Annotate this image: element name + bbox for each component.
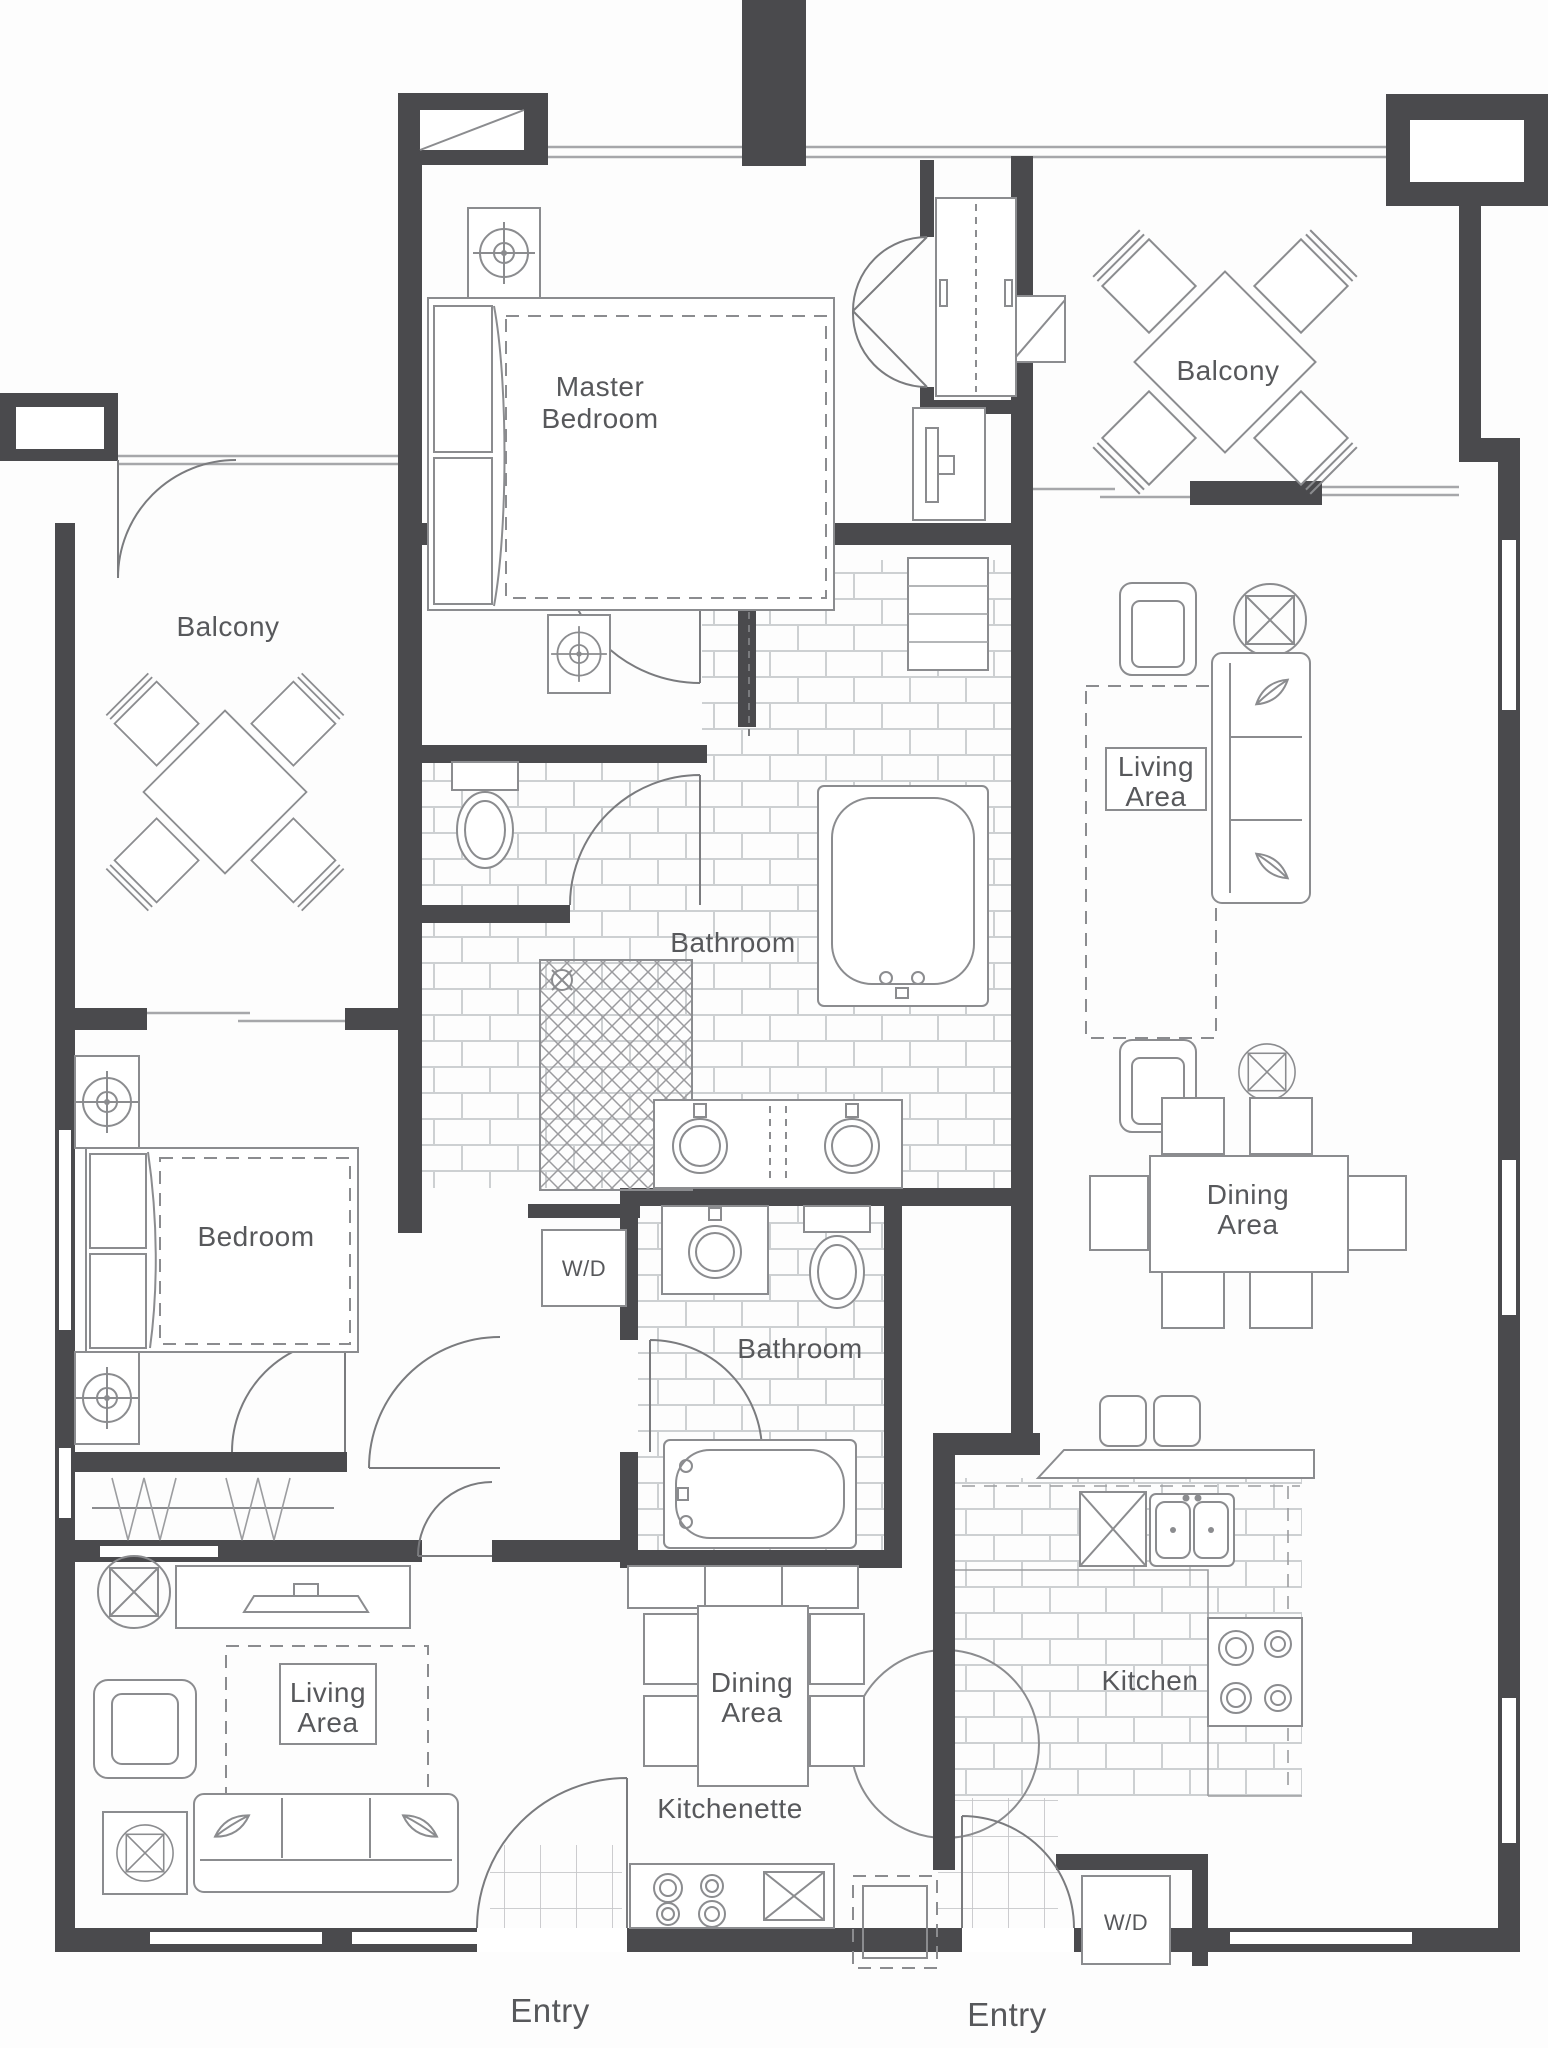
dining-area-center-label: Area bbox=[721, 1697, 782, 1728]
living-area-left-label: Living bbox=[290, 1677, 366, 1708]
dining-chair bbox=[1090, 1176, 1148, 1250]
dining-chair bbox=[644, 1696, 698, 1766]
sink bbox=[764, 1872, 824, 1920]
living-area-right-label: Living bbox=[1118, 751, 1194, 782]
dining-chair bbox=[810, 1614, 864, 1684]
bathtub bbox=[664, 1440, 856, 1548]
double-vanity bbox=[654, 1100, 902, 1188]
bathroom-master-label: Bathroom bbox=[670, 927, 795, 958]
dining-chair bbox=[1162, 1098, 1224, 1154]
dining-area-right-label: Area bbox=[1217, 1209, 1278, 1240]
balcony-left-label: Balcony bbox=[176, 611, 279, 642]
tv-console bbox=[176, 1566, 410, 1628]
double-sink bbox=[1150, 1494, 1234, 1566]
toilet bbox=[452, 762, 518, 868]
vanity bbox=[662, 1206, 768, 1294]
wardrobe bbox=[936, 198, 1016, 396]
armchair bbox=[1120, 583, 1196, 675]
dining-area-right-label: Dining bbox=[1207, 1179, 1289, 1210]
sofa bbox=[194, 1794, 458, 1892]
bathtub bbox=[818, 786, 988, 1006]
living-area-right bbox=[1086, 583, 1310, 1132]
master-bedroom-label: Bedroom bbox=[541, 403, 658, 434]
bench bbox=[628, 1566, 858, 1608]
floor-plan-drawing: Master Bedroom Balcony Balcony Living Ar… bbox=[0, 0, 1548, 2048]
dining-chair bbox=[644, 1614, 698, 1684]
washer-dryer-right-label: W/D bbox=[1104, 1910, 1148, 1935]
master-bedroom-label: Master bbox=[556, 371, 645, 402]
closet-bifold-upper bbox=[853, 237, 927, 311]
side-table bbox=[1239, 1044, 1295, 1100]
cooktop bbox=[1208, 1618, 1302, 1726]
toilet bbox=[804, 1206, 870, 1308]
hall-door bbox=[369, 1337, 500, 1468]
side-table bbox=[103, 1812, 187, 1894]
linen-cabinet bbox=[908, 558, 988, 670]
rug bbox=[1086, 686, 1216, 1038]
entry-right-tile bbox=[938, 1798, 1058, 1928]
bedroom-door bbox=[232, 1339, 345, 1452]
dining-chair bbox=[1348, 1176, 1406, 1250]
bar-counter bbox=[1038, 1450, 1314, 1478]
bar-stool bbox=[1100, 1396, 1146, 1446]
living-area-right-label: Area bbox=[1125, 781, 1186, 812]
bar-stool bbox=[1154, 1396, 1200, 1446]
dining-chair bbox=[810, 1696, 864, 1766]
side-table bbox=[1234, 584, 1306, 656]
hall-living-door bbox=[418, 1482, 492, 1556]
master-tv-console bbox=[913, 408, 985, 520]
washer-dryer-left-label: W/D bbox=[562, 1256, 606, 1281]
bathroom-second-label: Bathroom bbox=[737, 1333, 862, 1364]
kitchenette-label: Kitchenette bbox=[657, 1793, 803, 1824]
dining-area-center-label: Dining bbox=[711, 1667, 793, 1698]
dining-chair bbox=[1250, 1098, 1312, 1154]
entry-right-label: Entry bbox=[967, 1996, 1047, 2033]
closet-bifold-lower bbox=[853, 311, 927, 387]
corner-cabinet bbox=[1080, 1492, 1146, 1566]
plant-table bbox=[98, 1556, 170, 1628]
armchair bbox=[94, 1680, 196, 1778]
kitchen-label: Kitchen bbox=[1102, 1665, 1199, 1696]
balcony-left-table-set bbox=[106, 673, 343, 910]
balcony-right-label: Balcony bbox=[1176, 355, 1279, 386]
dining-chair bbox=[1162, 1272, 1224, 1328]
floor-plan-page: Master Bedroom Balcony Balcony Living Ar… bbox=[0, 0, 1548, 2048]
refrigerator bbox=[853, 1876, 937, 1968]
balcony-left-door bbox=[118, 460, 236, 578]
master-bed bbox=[428, 298, 834, 610]
kitchenette bbox=[630, 1864, 834, 1928]
bedroom-label: Bedroom bbox=[197, 1221, 314, 1252]
living-area-left-label: Area bbox=[297, 1707, 358, 1738]
entry-left-label: Entry bbox=[510, 1992, 590, 2029]
closet-hangers bbox=[92, 1478, 334, 1540]
sofa bbox=[1212, 653, 1310, 903]
dining-chair bbox=[1250, 1272, 1312, 1328]
entry-left-tile bbox=[490, 1845, 622, 1928]
